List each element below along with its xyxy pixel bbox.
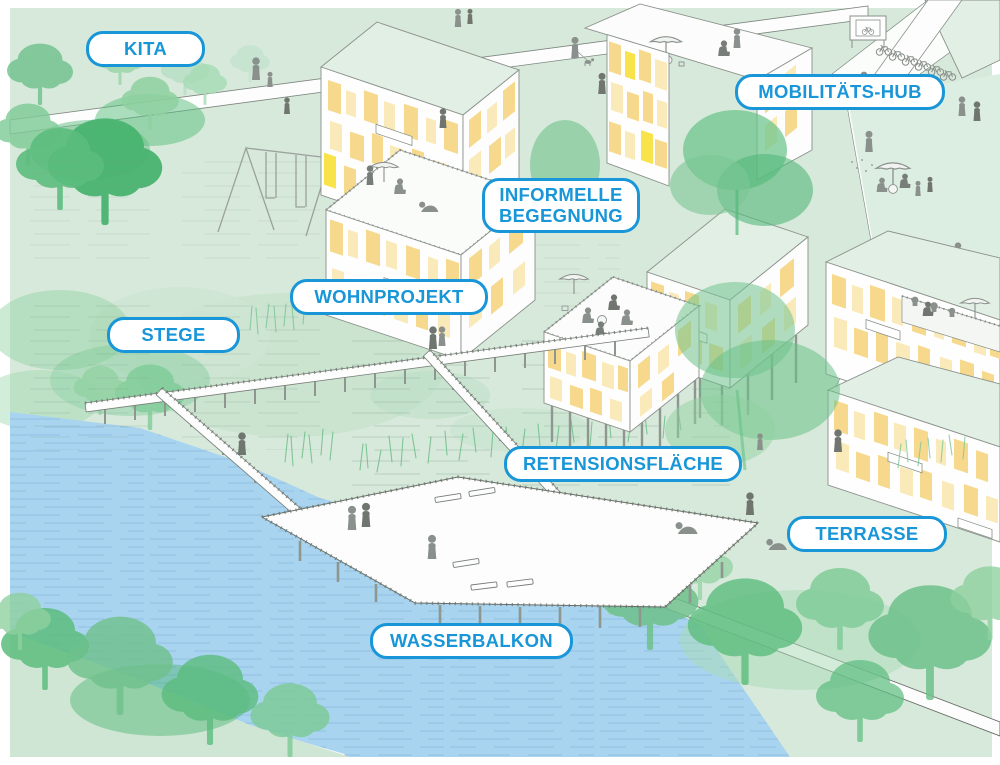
person-icon [284, 97, 290, 114]
person-icon [733, 28, 740, 48]
label-mobilitaets-hub: MOBILITÄTS-HUB [735, 74, 945, 110]
person-icon [428, 535, 437, 559]
person-stretch-icon [746, 492, 754, 515]
person-icon [865, 131, 873, 152]
label-wohnprojekt: WOHNPROJEKT [290, 279, 488, 315]
person-icon [958, 96, 965, 116]
label-terrasse: TERRASSE [787, 516, 947, 552]
label-wasserbalkon: WASSERBALKON [370, 623, 573, 659]
person-icon [439, 108, 446, 128]
person-icon [438, 326, 445, 346]
person-icon [429, 326, 437, 349]
person-icon [973, 101, 980, 121]
illustration-page: KITA MOBILITÄTS-HUB INFORMELLE BEGEGNUNG… [0, 0, 1000, 765]
table-icon [889, 185, 898, 194]
person-icon [252, 57, 260, 80]
person-icon [362, 503, 371, 527]
person-icon [467, 9, 472, 24]
person-icon [366, 165, 373, 185]
person-icon [571, 37, 579, 58]
person-icon [238, 432, 246, 455]
person-icon [598, 73, 606, 94]
person-icon [915, 181, 920, 196]
person-icon [455, 9, 461, 27]
person-icon [348, 506, 357, 530]
person-icon [927, 177, 932, 192]
label-retensionsflaeche: RETENSIONSFLÄCHE [504, 446, 742, 482]
person-icon [834, 429, 842, 452]
label-stege: STEGE [107, 317, 240, 353]
person-icon [757, 433, 763, 450]
label-informelle-begegnung: INFORMELLE BEGEGNUNG [482, 178, 640, 233]
label-kita: KITA [86, 31, 205, 67]
person-icon [267, 72, 272, 87]
